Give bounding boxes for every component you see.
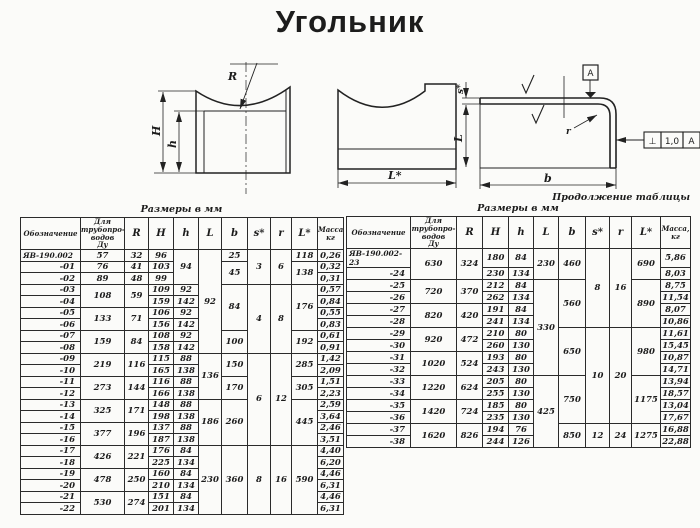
value-cell: 445 (292, 399, 318, 445)
value-cell: 193 (483, 352, 509, 364)
value-cell: 3,64 (318, 411, 344, 423)
value-cell: 198 (149, 411, 174, 423)
table-row: -09219116115881361506122851,42 (21, 353, 344, 365)
value-cell: 134 (174, 503, 199, 515)
value-cell: 12 (586, 424, 610, 448)
column-header: Для трубопро- водов Ду (411, 217, 457, 249)
value-cell: 185 (483, 400, 509, 412)
value-cell: 92 (174, 284, 199, 296)
surface-finish-icon (522, 75, 564, 123)
dim-label-h: h (166, 140, 179, 148)
value-cell: 150 (222, 353, 248, 376)
table-caption: Размеры в мм (20, 204, 343, 217)
value-cell: 148 (149, 399, 174, 411)
value-cell: 88 (174, 353, 199, 365)
value-cell: 6,31 (318, 480, 344, 492)
value-cell: 750 (559, 376, 586, 424)
value-cell: 115 (149, 353, 174, 365)
designation-cell: -02 (21, 273, 81, 285)
profile-outline (338, 84, 456, 169)
column-header: H (483, 217, 509, 249)
value-cell: 219 (81, 353, 125, 376)
value-cell: 210 (483, 328, 509, 340)
value-cell: 57 (81, 250, 125, 262)
value-cell: 20 (610, 328, 632, 424)
value-cell: 1420 (411, 400, 457, 424)
value-cell: 166 (149, 388, 174, 400)
value-cell: 156 (149, 319, 174, 331)
value-cell: 1,42 (318, 353, 344, 365)
designation-cell: -29 (347, 328, 411, 340)
value-cell: 88 (174, 422, 199, 434)
column-header: h (509, 217, 534, 249)
value-cell: 690 (632, 249, 661, 280)
value-cell: 103 (149, 261, 174, 273)
value-cell: 192 (292, 330, 318, 353)
value-cell: 158 (149, 342, 174, 354)
header-row: ОбозначениеДля трубопро- водов ДуRHhLbs*… (347, 217, 691, 249)
designation-cell: -22 (21, 503, 81, 515)
value-cell: 13,04 (661, 400, 691, 412)
column-header: R (125, 218, 149, 250)
value-cell: 15,45 (661, 340, 691, 352)
header-row: ОбозначениеДля трубопро- водов ДуRHhLbs*… (21, 218, 344, 250)
value-cell: 4,40 (318, 445, 344, 457)
value-cell: 25 (222, 250, 248, 262)
value-cell: 0,26 (318, 250, 344, 262)
value-cell: 2,46 (318, 422, 344, 434)
value-cell: 230 (199, 445, 222, 514)
designation-cell: -35 (347, 400, 411, 412)
value-cell: 205 (483, 376, 509, 388)
column-header: L* (632, 217, 661, 249)
value-cell: 3 (248, 250, 271, 285)
value-cell: 80 (509, 400, 534, 412)
value-cell: 165 (149, 365, 174, 377)
column-header: Обозначение (21, 218, 81, 250)
value-cell: 8 (248, 445, 271, 514)
value-cell: 136 (199, 353, 222, 399)
value-cell: 6 (248, 353, 271, 445)
value-cell: 108 (149, 330, 174, 342)
value-cell: 191 (483, 304, 509, 316)
designation-cell: -03 (21, 284, 81, 296)
datum-letter: А (587, 69, 594, 79)
column-header: H (149, 218, 174, 250)
value-cell: 171 (125, 399, 149, 422)
value-cell: 210 (149, 480, 174, 492)
designation-cell: -07 (21, 330, 81, 342)
value-cell: 138 (174, 434, 199, 446)
value-cell: 142 (174, 296, 199, 308)
designation-cell: -26 (347, 292, 411, 304)
designation-cell: -36 (347, 412, 411, 424)
value-cell: 724 (457, 400, 483, 424)
value-cell: 524 (457, 352, 483, 376)
value-cell: 1620 (411, 424, 457, 448)
value-cell: 425 (534, 376, 559, 448)
value-cell: 138 (174, 365, 199, 377)
value-cell: 460 (559, 249, 586, 280)
value-cell: 560 (559, 280, 586, 328)
value-cell: 130 (509, 364, 534, 376)
value-cell: 11,61 (661, 328, 691, 340)
value-cell: 0,57 (318, 284, 344, 296)
designation-cell: -16 (21, 434, 81, 446)
value-cell: 630 (411, 249, 457, 280)
value-cell: 159 (81, 330, 125, 353)
value-cell: 84 (509, 304, 534, 316)
value-cell: 116 (125, 353, 149, 376)
value-cell: 8 (271, 284, 292, 353)
value-cell: 0,83 (318, 319, 344, 331)
value-cell: 130 (509, 388, 534, 400)
value-cell: 420 (457, 304, 483, 328)
value-cell: 8,07 (661, 304, 691, 316)
designation-cell: -11 (21, 376, 81, 388)
value-cell: 0,55 (318, 307, 344, 319)
profile-view-drawing: L* (322, 60, 472, 200)
value-cell: 134 (174, 457, 199, 469)
value-cell: 84 (125, 330, 149, 353)
value-cell: 142 (174, 319, 199, 331)
value-cell: 108 (81, 284, 125, 307)
column-header: s* (248, 218, 271, 250)
continuation-table-block: Продолжение таблицы Размеры в мм Обознач… (346, 192, 690, 448)
value-cell: 720 (411, 280, 457, 304)
designation-cell: -28 (347, 316, 411, 328)
value-cell: 88 (174, 399, 199, 411)
value-cell: 59 (125, 284, 149, 307)
value-cell: 138 (174, 388, 199, 400)
value-cell: 170 (222, 376, 248, 399)
value-cell: 22,88 (661, 436, 691, 448)
value-cell: 16 (610, 249, 632, 328)
designation-cell: -31 (347, 352, 411, 364)
value-cell: 84 (174, 491, 199, 503)
value-cell: 3,51 (318, 434, 344, 446)
designation-cell: -33 (347, 376, 411, 388)
value-cell: 6,31 (318, 503, 344, 515)
designation-cell: -06 (21, 319, 81, 331)
designation-cell: -04 (21, 296, 81, 308)
value-cell: 92 (174, 330, 199, 342)
value-cell: 2,09 (318, 365, 344, 377)
table-row: -17426221176842303608165904,40 (21, 445, 344, 457)
value-cell: 1,51 (318, 376, 344, 388)
value-cell: 160 (149, 468, 174, 480)
value-cell: 84 (509, 249, 534, 268)
value-cell: 0,61 (318, 330, 344, 342)
value-cell: 1020 (411, 352, 457, 376)
value-cell: 142 (174, 342, 199, 354)
value-cell: 273 (81, 376, 125, 399)
designation-cell: -21 (21, 491, 81, 503)
value-cell: 71 (125, 307, 149, 330)
value-cell: 133 (81, 307, 125, 330)
designation-cell: ЯВ-190.002-23 (347, 249, 411, 268)
value-cell: 530 (81, 491, 125, 514)
front-view-drawing: H h R (152, 60, 312, 200)
value-cell: 151 (149, 491, 174, 503)
value-cell: 243 (483, 364, 509, 376)
value-cell: 377 (81, 422, 125, 445)
value-cell: 1220 (411, 376, 457, 400)
value-cell: 650 (559, 328, 586, 376)
value-cell: 144 (125, 376, 149, 399)
column-header: r (271, 218, 292, 250)
value-cell: 201 (149, 503, 174, 515)
dimensions-table: ОбозначениеДля трубопро- водов ДуRHhLbs*… (20, 217, 344, 515)
value-cell: 826 (457, 424, 483, 448)
value-cell: 100 (222, 330, 248, 353)
tolerance-value: 1,0 (665, 137, 680, 147)
designation-cell: -37 (347, 424, 411, 436)
value-cell: 130 (509, 412, 534, 424)
table-caption: Размеры в мм (346, 203, 690, 216)
designation-cell: -09 (21, 353, 81, 365)
value-cell: 45 (222, 261, 248, 284)
value-cell: 230 (483, 268, 509, 280)
value-cell: 159 (149, 296, 174, 308)
value-cell: 187 (149, 434, 174, 446)
value-cell: 80 (509, 376, 534, 388)
table-row: -25720370212843305608908,75 (347, 280, 691, 292)
value-cell: 116 (149, 376, 174, 388)
dimension-R (230, 63, 278, 109)
value-cell: 285 (292, 353, 318, 376)
value-cell: 305 (292, 376, 318, 399)
value-cell: 10 (586, 328, 610, 424)
value-cell: 230 (534, 249, 559, 280)
value-cell: 89 (81, 273, 125, 285)
designation-cell: -18 (21, 457, 81, 469)
designation-cell: -14 (21, 411, 81, 423)
dim-label-r: r (566, 127, 572, 137)
value-cell: 221 (125, 445, 149, 468)
dim-label-R: R (227, 70, 237, 83)
value-cell: 4,46 (318, 491, 344, 503)
value-cell: 330 (534, 280, 559, 376)
value-cell: 0,32 (318, 261, 344, 273)
value-cell: 2,23 (318, 388, 344, 400)
page-title: Угольник (0, 4, 700, 40)
value-cell: 88 (174, 376, 199, 388)
designation-cell: -01 (21, 261, 81, 273)
designation-cell: -08 (21, 342, 81, 354)
value-cell: 820 (411, 304, 457, 328)
designation-cell: -12 (21, 388, 81, 400)
column-header: Масса, кг (661, 217, 691, 249)
column-header: Обозначение (347, 217, 411, 249)
value-cell: 96 (149, 250, 174, 262)
value-cell: 118 (292, 250, 318, 262)
designation-cell: -17 (21, 445, 81, 457)
document-page: Угольник H h R (0, 0, 700, 528)
value-cell: 176 (149, 445, 174, 457)
column-header: r (610, 217, 632, 249)
dimensions-table-continuation: ОбозначениеДля трубопро- водов ДуRHhLbs*… (346, 216, 691, 448)
value-cell: 212 (483, 280, 509, 292)
value-cell: 0,31 (318, 273, 344, 285)
value-cell: 1275 (632, 424, 661, 448)
column-header: Масса, кг (318, 218, 344, 250)
value-cell: 478 (81, 468, 125, 491)
dim-label-s-star: s* (456, 84, 466, 94)
value-cell: 6,20 (318, 457, 344, 469)
designation-cell: -15 (21, 422, 81, 434)
value-cell: 18,57 (661, 388, 691, 400)
designation-cell: -10 (21, 365, 81, 377)
value-cell: 472 (457, 328, 483, 352)
tolerance-frame: ⊥ 1,0 А (616, 132, 700, 148)
value-cell: 92 (174, 307, 199, 319)
dim-label-H: H (152, 125, 163, 137)
value-cell: 126 (509, 436, 534, 448)
designation-cell: -38 (347, 436, 411, 448)
table-row: -2992047221080650102098011,61 (347, 328, 691, 340)
value-cell: 194 (483, 424, 509, 436)
table-row: -371620826194768501224127516,88 (347, 424, 691, 436)
value-cell: 134 (509, 268, 534, 280)
designation-cell: -34 (347, 388, 411, 400)
value-cell: 17,67 (661, 412, 691, 424)
value-cell: 109 (149, 284, 174, 296)
value-cell: 324 (457, 249, 483, 280)
value-cell: 10,86 (661, 316, 691, 328)
column-header: L* (292, 218, 318, 250)
value-cell: 241 (483, 316, 509, 328)
value-cell: 138 (292, 261, 318, 284)
value-cell: 274 (125, 491, 149, 514)
value-cell: 8,03 (661, 268, 691, 280)
value-cell: 138 (174, 411, 199, 423)
designation-cell: -24 (347, 268, 411, 280)
value-cell: 5,86 (661, 249, 691, 268)
value-cell: 16 (271, 445, 292, 514)
value-cell: 13,94 (661, 376, 691, 388)
table-header-row: ОбозначениеДля трубопро- водов ДуRHhLbs*… (21, 218, 344, 250)
value-cell: 130 (509, 340, 534, 352)
value-cell: 186 (199, 399, 222, 445)
value-cell: 260 (483, 340, 509, 352)
table-header-row: ОбозначениеДля трубопро- водов ДуRHhLbs*… (347, 217, 691, 249)
value-cell: 4 (248, 284, 271, 353)
main-table-block: Размеры в мм ОбозначениеДля трубопро- во… (20, 204, 343, 515)
value-cell: 196 (125, 422, 149, 445)
value-cell: 48 (125, 273, 149, 285)
value-cell: 99 (149, 273, 174, 285)
value-cell: 360 (222, 445, 248, 514)
column-header: L (199, 218, 222, 250)
value-cell: 137 (149, 422, 174, 434)
column-header: b (222, 218, 248, 250)
table-row: -13325171148881862604452,59 (21, 399, 344, 411)
value-cell: 624 (457, 376, 483, 400)
value-cell: 84 (509, 280, 534, 292)
table-row: ЯВ-190.002-23630324180842304608166905,86 (347, 249, 691, 268)
value-cell: 244 (483, 436, 509, 448)
value-cell: 325 (81, 399, 125, 422)
value-cell: 84 (174, 468, 199, 480)
column-header: L (534, 217, 559, 249)
table-body: ЯВ-190.002-23630324180842304608166905,86… (347, 249, 691, 448)
value-cell: 6 (271, 250, 292, 285)
dim-label-b: b (544, 172, 552, 185)
radius-callout: r (566, 115, 597, 137)
continuation-label: Продолжение таблицы (346, 192, 690, 203)
value-cell: 134 (174, 480, 199, 492)
value-cell: 134 (509, 316, 534, 328)
value-cell: 850 (559, 424, 586, 448)
column-header: b (559, 217, 586, 249)
value-cell: 920 (411, 328, 457, 352)
value-cell: 76 (509, 424, 534, 436)
value-cell: 176 (292, 284, 318, 330)
value-cell: 32 (125, 250, 149, 262)
tolerance-datum: А (688, 137, 695, 147)
table-body: ЯВ-190.002573296949225361180,26-01764110… (21, 250, 344, 515)
value-cell: 41 (125, 261, 149, 273)
value-cell: 255 (483, 388, 509, 400)
column-header: Для трубопро- водов Ду (81, 218, 125, 250)
plate-outline (480, 98, 616, 168)
value-cell: 426 (81, 445, 125, 468)
designation-cell: -32 (347, 364, 411, 376)
column-header: s* (586, 217, 610, 249)
value-cell: 225 (149, 457, 174, 469)
designation-cell: -27 (347, 304, 411, 316)
value-cell: 106 (149, 307, 174, 319)
table-row: -0715984108921001920,61 (21, 330, 344, 342)
value-cell: 590 (292, 445, 318, 514)
value-cell: 94 (174, 250, 199, 285)
value-cell: 10,87 (661, 352, 691, 364)
value-cell: 980 (632, 328, 661, 376)
value-cell: 2,59 (318, 399, 344, 411)
value-cell: 14,71 (661, 364, 691, 376)
designation-cell: -19 (21, 468, 81, 480)
designation-cell: -30 (347, 340, 411, 352)
value-cell: 4,46 (318, 468, 344, 480)
table-row: -33122062420580425750117513,94 (347, 376, 691, 388)
value-cell: 0,91 (318, 342, 344, 354)
table-row: ЯВ-190.002573296949225361180,26 (21, 250, 344, 262)
datum-flag: А (583, 65, 598, 98)
designation-cell: ЯВ-190.002 (21, 250, 81, 262)
value-cell: 84 (222, 284, 248, 330)
value-cell: 890 (632, 280, 661, 328)
column-header: h (174, 218, 199, 250)
column-header: R (457, 217, 483, 249)
dim-label-L: L (452, 134, 465, 143)
value-cell: 12 (271, 353, 292, 445)
table-row: -11273144116881703051,51 (21, 376, 344, 388)
value-cell: 76 (81, 261, 125, 273)
value-cell: 260 (222, 399, 248, 445)
value-cell: 134 (509, 292, 534, 304)
value-cell: 235 (483, 412, 509, 424)
table-row: -03108591099284481760,57 (21, 284, 344, 296)
value-cell: 8,75 (661, 280, 691, 292)
value-cell: 11,54 (661, 292, 691, 304)
designation-cell: -20 (21, 480, 81, 492)
section-view-drawing: s* L b А ⊥ 1,0 А (452, 58, 700, 200)
value-cell: 80 (509, 328, 534, 340)
perpendicularity-icon: ⊥ (649, 137, 657, 147)
value-cell: 84 (174, 445, 199, 457)
value-cell: 370 (457, 280, 483, 304)
